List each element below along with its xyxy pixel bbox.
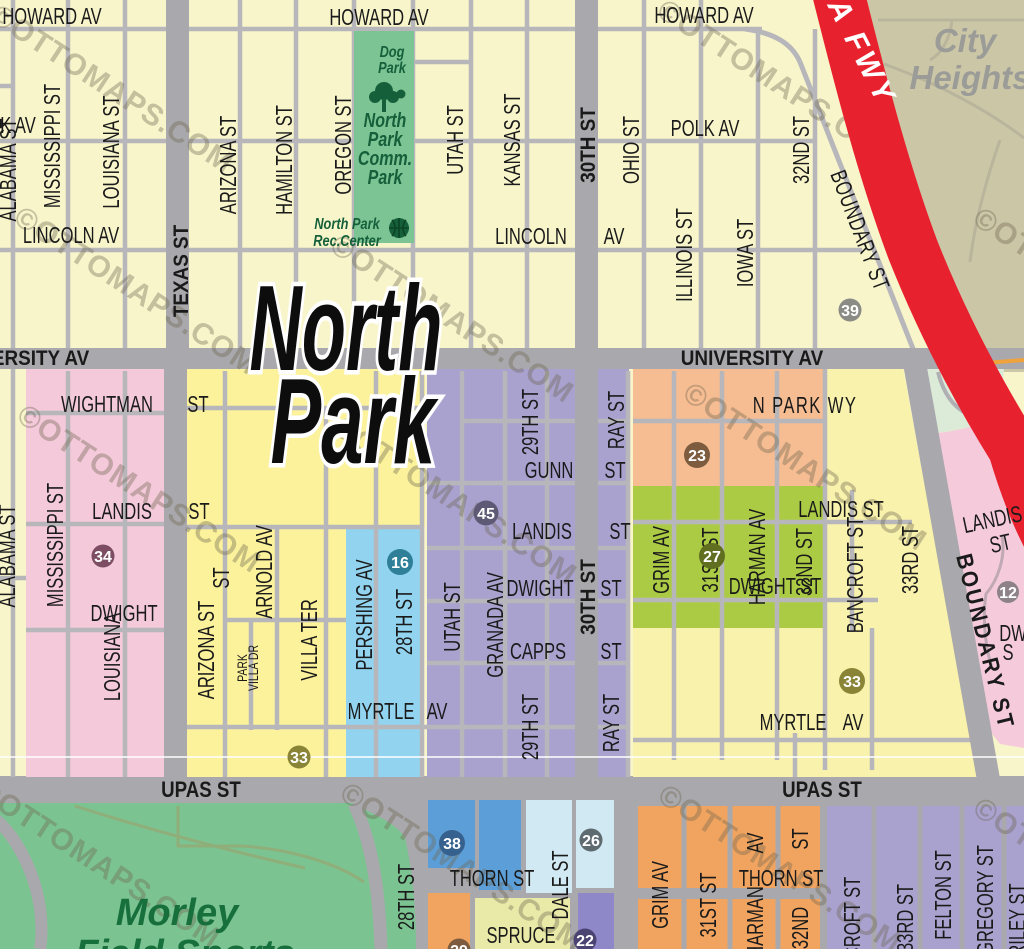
svg-text:ST: ST: [209, 567, 234, 588]
svg-text:ALABAMA ST: ALABAMA ST: [0, 504, 21, 607]
svg-text:33RD ST: 33RD ST: [898, 526, 923, 594]
svg-text:27: 27: [703, 549, 721, 566]
svg-text:VILLA DR: VILLA DR: [246, 645, 262, 691]
svg-text:DALE ST: DALE ST: [548, 851, 573, 920]
svg-text:DWIGHT: DWIGHT: [506, 576, 573, 601]
svg-text:33: 33: [843, 674, 861, 691]
svg-text:SPRUCE: SPRUCE: [487, 923, 556, 948]
svg-text:HAMILTON ST: HAMILTON ST: [272, 105, 297, 215]
svg-text:28TH ST: 28TH ST: [394, 864, 419, 930]
svg-text:IOWA ST: IOWA ST: [733, 219, 758, 287]
svg-text:BANCROFT ST: BANCROFT ST: [843, 517, 868, 633]
svg-text:N PARK WY: N PARK WY: [753, 393, 858, 418]
svg-text:North Park: North Park: [314, 216, 380, 234]
svg-text:Park: Park: [271, 353, 439, 489]
svg-text:LOUISIANA: LOUISIANA: [100, 612, 125, 701]
svg-text:HOWARD AV: HOWARD AV: [2, 4, 102, 29]
svg-text:UPAS ST: UPAS ST: [782, 779, 862, 803]
svg-text:39: 39: [841, 303, 859, 320]
svg-text:DWIGHT ST: DWIGHT ST: [729, 574, 822, 599]
svg-text:UNIVERSITY AV: UNIVERSITY AV: [681, 347, 824, 370]
svg-text:HOWARD AV: HOWARD AV: [654, 3, 754, 28]
svg-text:GREGORY ST: GREGORY ST: [973, 845, 998, 949]
svg-text:LOUISIANA ST: LOUISIANA ST: [99, 95, 124, 208]
svg-text:Field Sports: Field Sports: [75, 933, 295, 949]
svg-text:UNIVERSITY AV: UNIVERSITY AV: [0, 347, 90, 370]
svg-text:22: 22: [576, 933, 594, 949]
svg-text:30TH ST: 30TH ST: [577, 107, 600, 183]
svg-text:LINCOLN AV: LINCOLN AV: [23, 223, 120, 248]
svg-text:GRANADA AV: GRANADA AV: [483, 572, 508, 678]
svg-text:ILLINOIS ST: ILLINOIS ST: [672, 208, 697, 302]
svg-text:Park: Park: [378, 60, 407, 78]
svg-text:LANDIS: LANDIS: [512, 519, 572, 544]
svg-text:ST: ST: [788, 828, 813, 849]
svg-text:RAY ST: RAY ST: [604, 391, 629, 449]
svg-text:16: 16: [391, 555, 409, 572]
svg-text:30TH ST: 30TH ST: [577, 559, 600, 635]
svg-text:Park: Park: [368, 166, 404, 188]
svg-text:GUNN: GUNN: [525, 458, 574, 483]
svg-text:ST: ST: [604, 458, 625, 483]
svg-text:City: City: [934, 22, 998, 59]
svg-text:WIGHTMAN: WIGHTMAN: [61, 392, 153, 417]
svg-text:BANCROFT ST: BANCROFT ST: [840, 877, 865, 949]
svg-text:ARIZONA ST: ARIZONA ST: [216, 116, 241, 214]
svg-text:29TH ST: 29TH ST: [518, 389, 543, 455]
svg-text:ST: ST: [187, 392, 208, 417]
svg-text:32ND ST: 32ND ST: [789, 116, 814, 184]
svg-text:RILEY ST: RILEY ST: [1005, 883, 1024, 949]
svg-text:AV: AV: [843, 710, 864, 735]
svg-text:33: 33: [290, 750, 308, 767]
svg-text:KANSAS ST: KANSAS ST: [500, 94, 525, 187]
svg-text:MYRTLE: MYRTLE: [760, 710, 827, 735]
svg-text:ST: ST: [609, 519, 630, 544]
svg-text:Heights: Heights: [909, 59, 1024, 96]
svg-text:CAPPS: CAPPS: [510, 639, 566, 664]
svg-text:LANDIS ST: LANDIS ST: [798, 497, 884, 522]
svg-text:TEXAS ST: TEXAS ST: [170, 225, 193, 317]
svg-text:RAY ST: RAY ST: [599, 694, 624, 752]
svg-text:MYRTLE: MYRTLE: [348, 699, 415, 724]
svg-text:UTAH ST: UTAH ST: [443, 105, 468, 175]
svg-text:THORN ST: THORN ST: [450, 866, 535, 891]
svg-text:12: 12: [999, 585, 1017, 602]
svg-text:29TH ST: 29TH ST: [518, 694, 543, 760]
svg-text:OHIO ST: OHIO ST: [619, 116, 644, 184]
svg-text:AV: AV: [427, 699, 448, 724]
svg-text:ALABAMA ST: ALABAMA ST: [0, 118, 22, 221]
svg-text:Morley: Morley: [116, 892, 240, 934]
svg-text:ST: ST: [600, 639, 621, 664]
svg-text:LANDIS: LANDIS: [92, 499, 152, 524]
svg-text:ARNOLD AV: ARNOLD AV: [252, 525, 277, 619]
svg-text:POLK AV: POLK AV: [671, 116, 740, 141]
svg-text:FELTON ST: FELTON ST: [931, 850, 956, 940]
svg-text:45: 45: [477, 506, 495, 523]
svg-text:GRIM AV: GRIM AV: [649, 526, 674, 594]
svg-text:33RD ST: 33RD ST: [893, 884, 918, 949]
svg-text:LINCOLN: LINCOLN: [495, 224, 567, 249]
svg-text:AV: AV: [743, 832, 768, 853]
svg-text:OREGON ST: OREGON ST: [331, 95, 356, 194]
svg-text:ST: ST: [600, 576, 621, 601]
svg-text:32ND: 32ND: [788, 907, 813, 949]
svg-text:MISSISSIPPI ST: MISSISSIPPI ST: [43, 483, 68, 607]
svg-text:VILLA TER: VILLA TER: [297, 599, 322, 681]
svg-text:HOWARD AV: HOWARD AV: [329, 5, 429, 30]
svg-text:ST: ST: [188, 499, 209, 524]
svg-text:HARMAN: HARMAN: [743, 886, 768, 949]
svg-text:28TH ST: 28TH ST: [392, 589, 417, 655]
svg-text:UPAS ST: UPAS ST: [161, 779, 241, 803]
svg-text:ARIZONA ST: ARIZONA ST: [194, 601, 219, 699]
svg-text:GRIM AV: GRIM AV: [648, 861, 673, 929]
svg-text:MISSISSIPPI ST: MISSISSIPPI ST: [40, 84, 65, 208]
svg-text:Rec.Center: Rec.Center: [313, 233, 382, 251]
svg-text:34: 34: [94, 549, 112, 566]
svg-text:31ST ST: 31ST ST: [696, 872, 721, 937]
svg-text:S: S: [1002, 640, 1013, 665]
svg-text:PERSHING AV: PERSHING AV: [352, 559, 377, 671]
svg-text:38: 38: [443, 836, 461, 853]
svg-text:29: 29: [450, 943, 468, 949]
svg-text:26: 26: [582, 833, 600, 850]
svg-text:UTAH ST: UTAH ST: [440, 582, 465, 652]
svg-text:AV: AV: [604, 224, 625, 249]
svg-text:23: 23: [688, 448, 706, 465]
